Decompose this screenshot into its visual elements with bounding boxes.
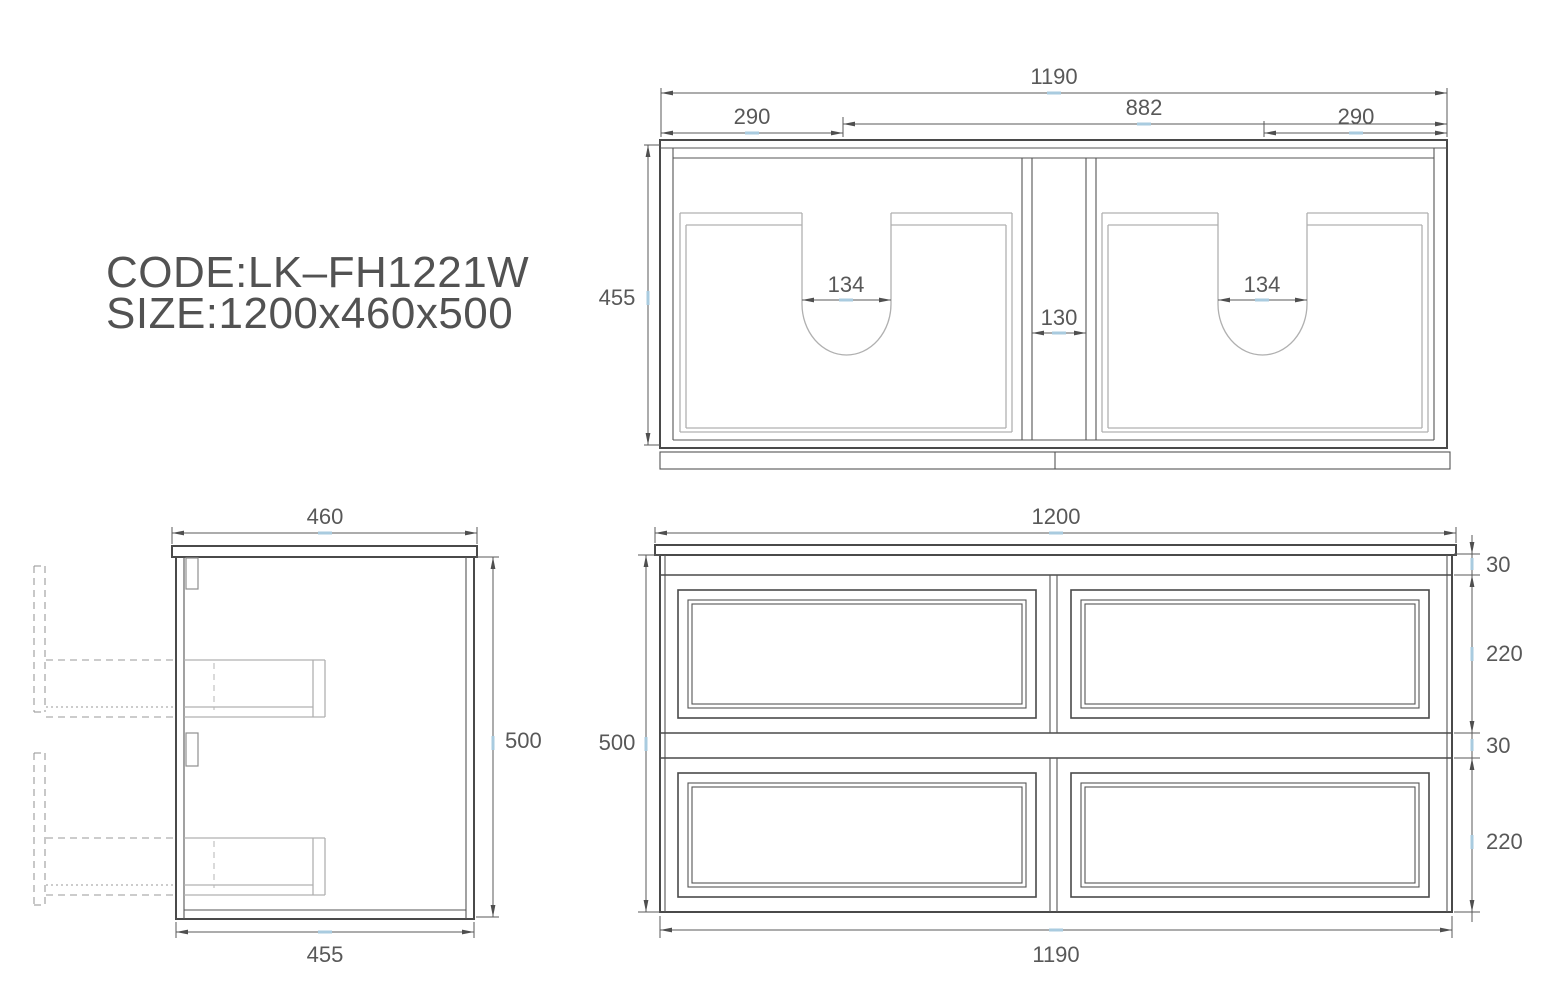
svg-text:134: 134 [828,272,865,297]
dim-right-cutout-width: 134 [1218,272,1307,302]
dim-front-height: 500 [599,555,660,912]
dim-left-cutout-width: 134 [802,272,891,302]
svg-text:500: 500 [599,730,636,755]
dim-top-left-offset: 290 [661,104,843,137]
dim-side-top-depth: 460 [172,504,477,544]
dim-top-right-offset: 290 [1264,104,1447,137]
technical-drawing: 1190 290 882 [0,0,1560,1006]
svg-text:220: 220 [1486,829,1523,854]
svg-text:220: 220 [1486,641,1523,666]
svg-text:134: 134 [1244,272,1281,297]
svg-text:30: 30 [1486,552,1510,577]
svg-text:1190: 1190 [1032,942,1079,967]
side-countertop [172,546,477,557]
svg-text:290: 290 [1338,104,1375,129]
svg-text:1200: 1200 [1032,504,1081,529]
right-basin-panel [1102,213,1428,432]
svg-text:882: 882 [1126,95,1163,120]
drawer-front-bottom-right [1071,773,1429,897]
front-edge-strip [660,452,1450,469]
dim-top-overall-width: 1190 [661,64,1447,137]
dim-front-right-chain: 30 220 30 220 [1454,535,1523,922]
dim-center-gap: 130 [1032,305,1086,335]
drawer-front-bottom-left [678,773,1036,897]
dim-side-bottom-depth: 455 [176,922,474,967]
svg-text:500: 500 [505,728,542,753]
dim-side-height: 500 [476,557,542,917]
front-center-divider [1050,575,1057,912]
svg-text:290: 290 [734,104,771,129]
dim-front-top-width: 1200 [655,504,1456,543]
dim-top-depth: 455 [599,145,660,445]
hidden-wall-rail [34,566,176,905]
lower-drawer-section [184,838,325,895]
drawer-front-top-left [678,590,1036,718]
center-partition [1022,158,1096,440]
svg-text:30: 30 [1486,733,1510,758]
front-countertop [655,545,1456,555]
upper-drawer-section [184,660,325,717]
svg-text:455: 455 [307,942,344,967]
svg-text:460: 460 [307,504,344,529]
front-view: 1200 500 [599,504,1523,967]
svg-text:455: 455 [599,285,636,310]
left-basin-panel [680,213,1012,432]
svg-text:130: 130 [1041,305,1078,330]
upper-bracket [186,558,198,589]
drawing-sheet: CODE:LK–FH1221W SIZE:1200x460x500 [0,0,1560,1006]
top-view-body [660,140,1447,448]
dim-front-bottom-width: 1190 [660,916,1452,967]
side-view: 460 500 455 [34,504,542,967]
svg-text:1190: 1190 [1030,64,1077,89]
top-view: 1190 290 882 [599,64,1450,469]
lower-bracket [186,733,198,766]
drawer-front-top-right [1071,590,1429,718]
